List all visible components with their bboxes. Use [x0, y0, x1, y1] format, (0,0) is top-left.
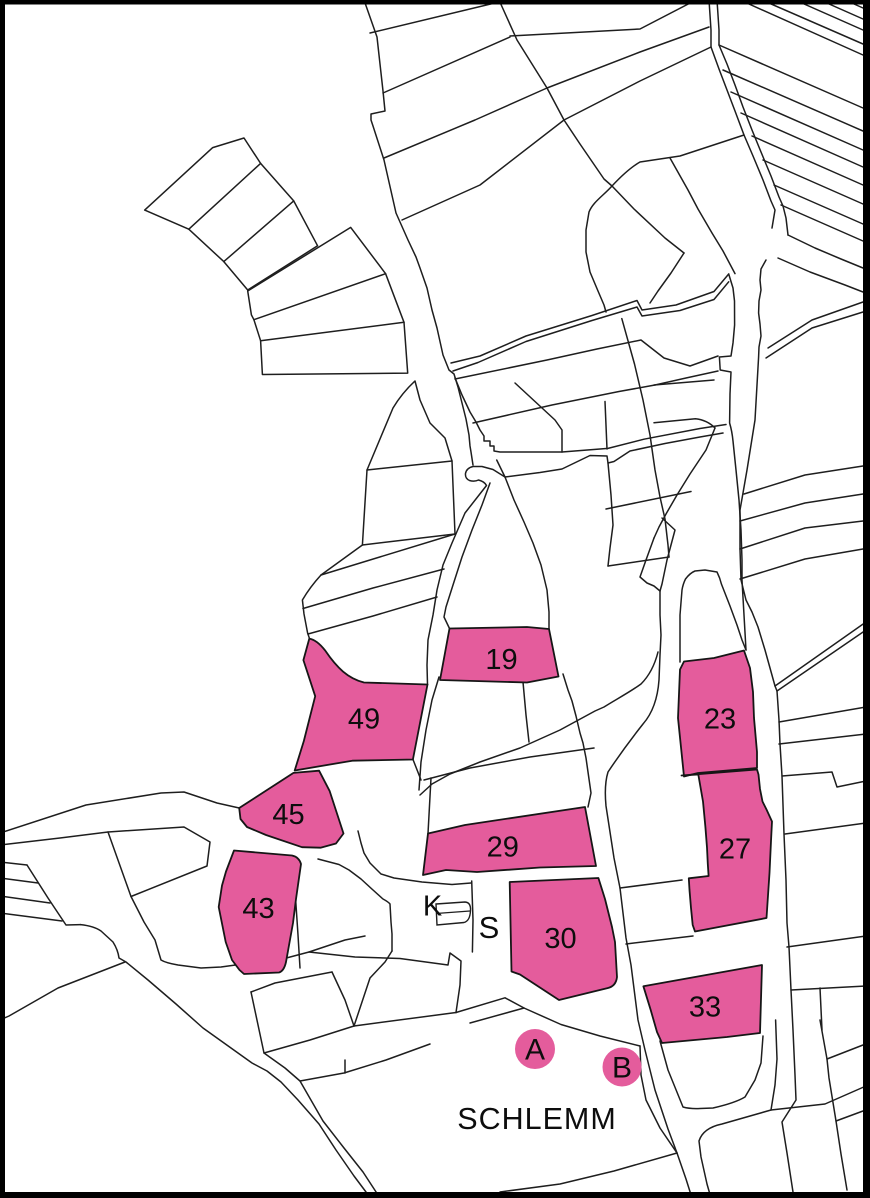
- svg-text:A: A: [525, 1034, 545, 1067]
- svg-text:23: 23: [704, 704, 736, 736]
- svg-text:49: 49: [348, 704, 380, 736]
- svg-text:19: 19: [485, 644, 517, 676]
- svg-text:29: 29: [487, 832, 519, 864]
- svg-text:SCHLEMM: SCHLEMM: [457, 1102, 617, 1136]
- svg-text:27: 27: [719, 834, 751, 866]
- svg-text:K: K: [423, 891, 443, 923]
- svg-text:B: B: [612, 1052, 632, 1085]
- svg-text:45: 45: [272, 799, 304, 831]
- svg-text:30: 30: [544, 923, 576, 955]
- svg-text:33: 33: [689, 992, 721, 1024]
- svg-text:S: S: [479, 910, 500, 945]
- svg-text:43: 43: [242, 893, 274, 925]
